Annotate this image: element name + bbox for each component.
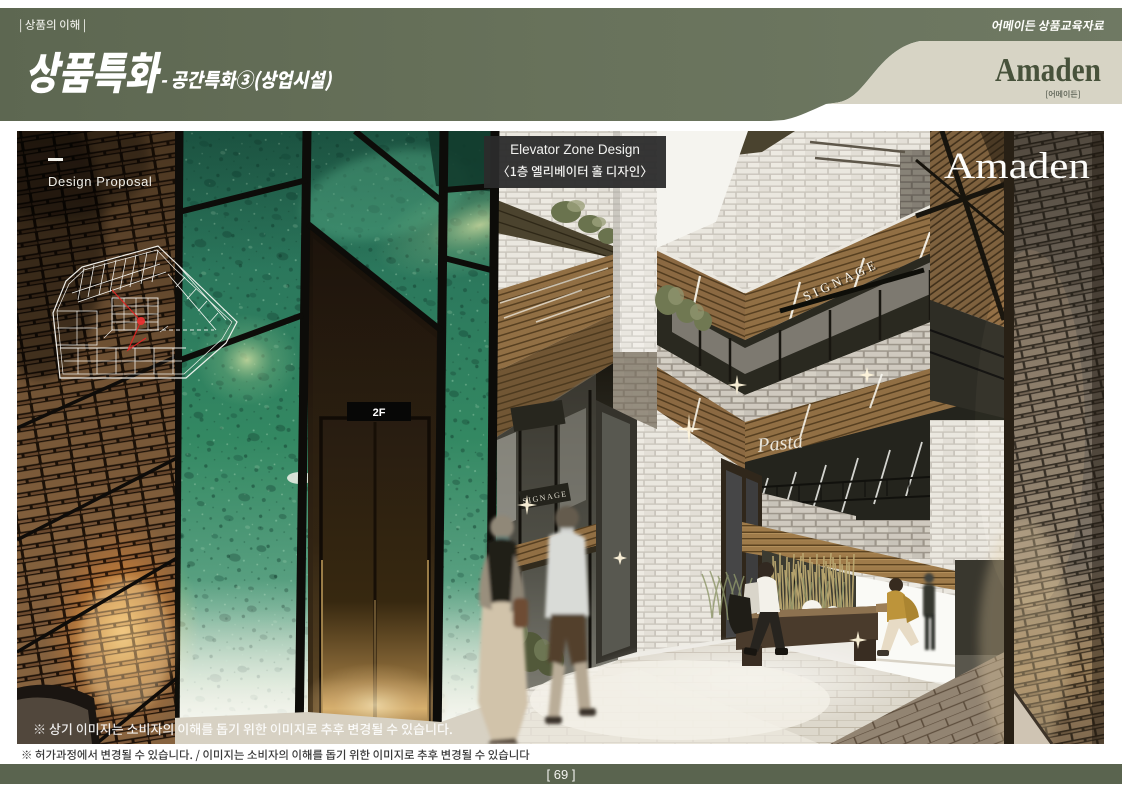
svg-text:Amaden: Amaden — [995, 52, 1101, 89]
svg-text:[ 69 ]: [ 69 ] — [547, 767, 576, 782]
svg-text:Design Proposal: Design Proposal — [48, 174, 152, 189]
svg-text:Amaden: Amaden — [944, 146, 1090, 187]
svg-text:Elevator Zone Design: Elevator Zone Design — [510, 142, 640, 157]
